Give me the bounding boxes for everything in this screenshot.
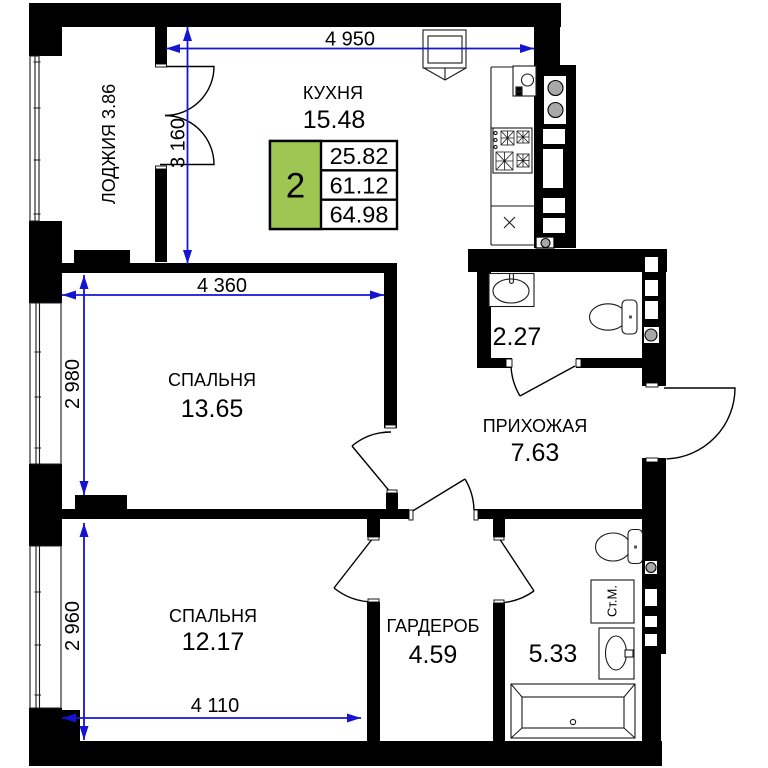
svg-text:ЛОДЖИЯ 3.86: ЛОДЖИЯ 3.86 <box>99 84 119 204</box>
svg-text:2 960: 2 960 <box>62 601 84 651</box>
svg-text:64.98: 64.98 <box>330 202 389 228</box>
svg-text:ПРИХОЖАЯ: ПРИХОЖАЯ <box>483 416 588 436</box>
svg-text:КУХНЯ: КУХНЯ <box>303 83 363 103</box>
svg-text:61.12: 61.12 <box>330 172 389 198</box>
svg-text:2.27: 2.27 <box>493 323 542 351</box>
svg-text:12.17: 12.17 <box>182 628 245 656</box>
svg-text:5.33: 5.33 <box>529 640 578 668</box>
svg-text:4 950: 4 950 <box>325 29 375 51</box>
svg-text:СПАЛЬНЯ: СПАЛЬНЯ <box>169 606 257 626</box>
svg-text:15.48: 15.48 <box>303 106 366 134</box>
svg-text:4 110: 4 110 <box>191 695 240 717</box>
svg-text:25.82: 25.82 <box>330 143 389 169</box>
svg-text:2: 2 <box>286 167 305 206</box>
svg-text:Ст.М.: Ст.М. <box>604 585 619 617</box>
svg-text:13.65: 13.65 <box>181 395 244 423</box>
svg-text:СПАЛЬНЯ: СПАЛЬНЯ <box>168 370 256 390</box>
svg-text:2 980: 2 980 <box>62 359 84 409</box>
svg-text:ГАРДЕРОБ: ГАРДЕРОБ <box>387 616 480 636</box>
svg-text:4.59: 4.59 <box>409 641 458 669</box>
svg-text:7.63: 7.63 <box>511 439 560 467</box>
svg-text:4 360: 4 360 <box>197 275 247 297</box>
svg-text:3 160: 3 160 <box>168 118 190 168</box>
